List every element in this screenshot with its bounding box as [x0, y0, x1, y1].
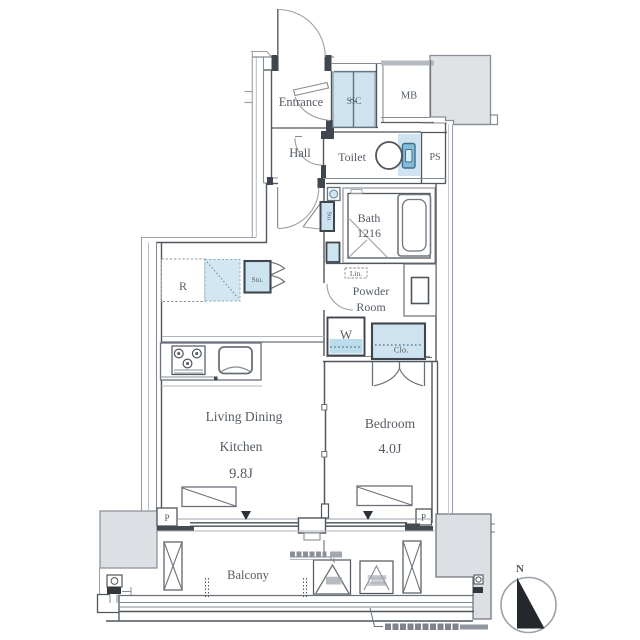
- svg-text:Toilet: Toilet: [338, 150, 366, 164]
- svg-text:Entrance: Entrance: [279, 95, 324, 109]
- svg-text:R: R: [179, 279, 187, 293]
- svg-text:1216: 1216: [357, 226, 381, 240]
- svg-text:Powder: Powder: [353, 284, 390, 298]
- svg-text:Room: Room: [356, 300, 386, 314]
- svg-text:P: P: [421, 513, 426, 523]
- svg-text:W: W: [340, 327, 353, 342]
- svg-text:SIC: SIC: [347, 97, 362, 107]
- svg-text:MB: MB: [401, 91, 417, 102]
- svg-text:Sto.: Sto.: [326, 211, 333, 222]
- svg-text:Balcony: Balcony: [227, 568, 269, 582]
- svg-text:Sto.: Sto.: [252, 275, 264, 284]
- svg-text:PS: PS: [429, 152, 440, 163]
- svg-text:Living Dining: Living Dining: [206, 409, 283, 424]
- svg-text:9.8J: 9.8J: [229, 466, 253, 482]
- svg-text:Hall: Hall: [289, 146, 311, 160]
- svg-text:Kitchen: Kitchen: [220, 439, 263, 454]
- svg-text:Bath: Bath: [358, 211, 381, 225]
- svg-text:Clo.: Clo.: [394, 345, 408, 355]
- svg-text:Lin.: Lin.: [350, 269, 362, 278]
- svg-text:4.0J: 4.0J: [379, 442, 403, 457]
- svg-text:Bedroom: Bedroom: [365, 416, 416, 431]
- svg-text:N: N: [516, 563, 524, 575]
- svg-text:P: P: [164, 513, 169, 523]
